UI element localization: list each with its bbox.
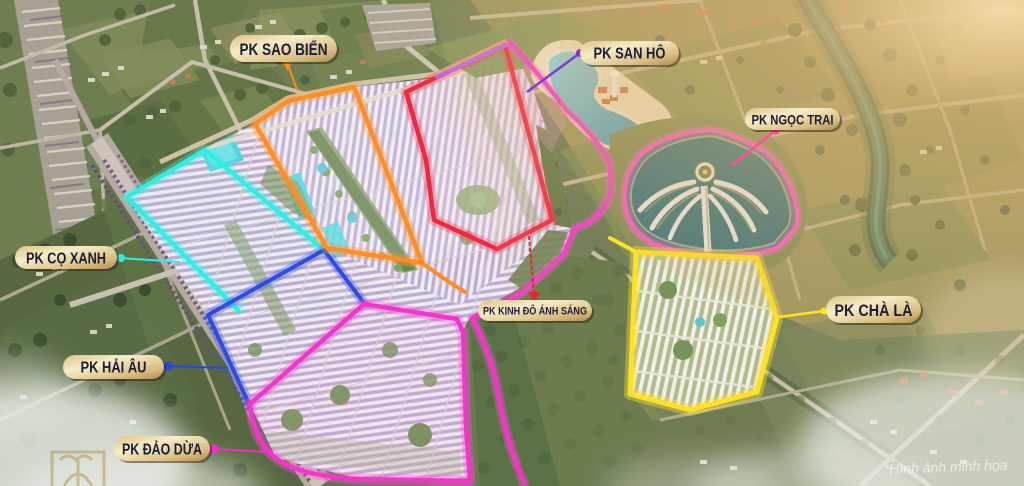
svg-text:PK HẢI ÂU: PK HẢI ÂU — [81, 359, 147, 377]
svg-text:PK NGỌC TRAI: PK NGỌC TRAI — [752, 112, 834, 128]
svg-text:PK SAN HÔ: PK SAN HÔ — [594, 45, 666, 63]
svg-text:PK SAO BIỂN: PK SAO BIỂN — [240, 40, 328, 59]
svg-text:PK CHÀ LÀ: PK CHÀ LÀ — [835, 301, 913, 320]
svg-text:PK ĐẢO DỪA: PK ĐẢO DỪA — [122, 441, 202, 459]
svg-text:PK KINH ĐÔ ÁNH SÁNG: PK KINH ĐÔ ÁNH SÁNG — [483, 305, 587, 318]
svg-text:PK CỌ XANH: PK CỌ XANH — [26, 251, 106, 268]
